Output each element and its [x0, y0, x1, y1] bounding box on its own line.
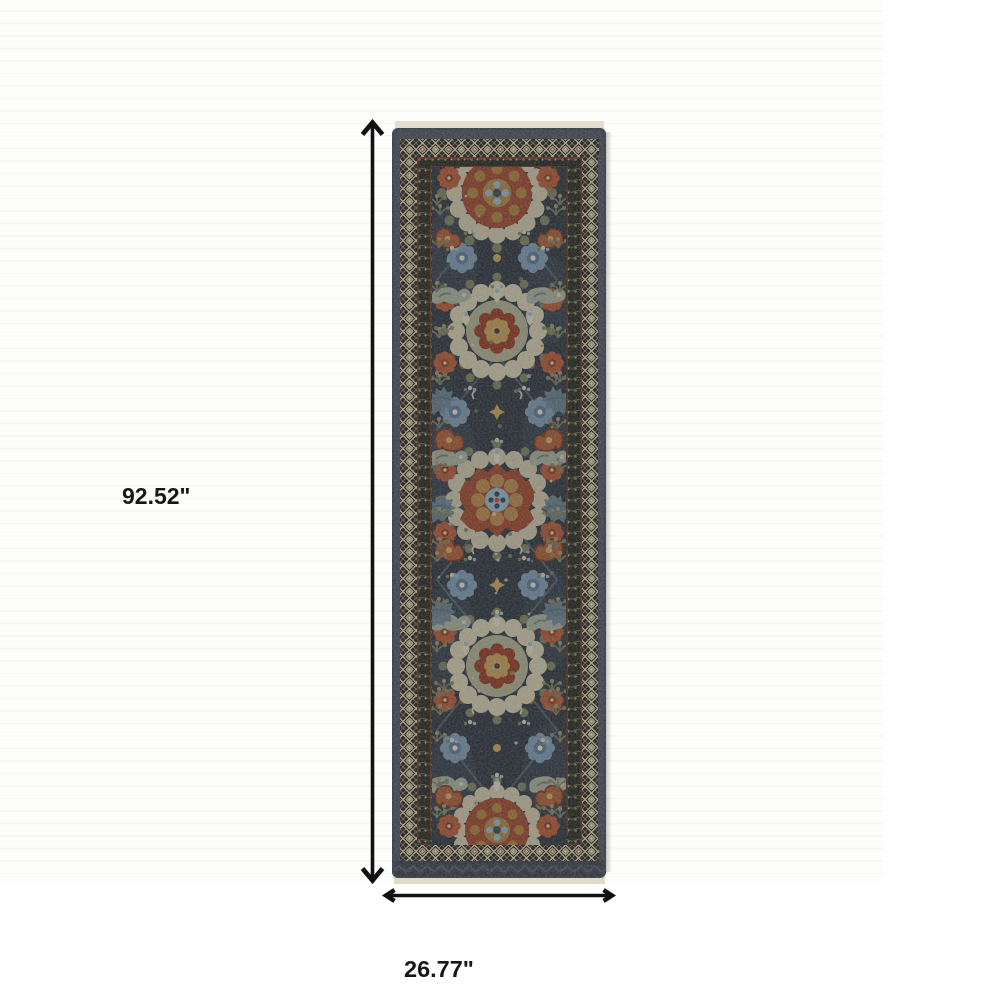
- svg-text:26.77": 26.77": [404, 956, 474, 982]
- svg-text:92.52": 92.52": [122, 483, 190, 509]
